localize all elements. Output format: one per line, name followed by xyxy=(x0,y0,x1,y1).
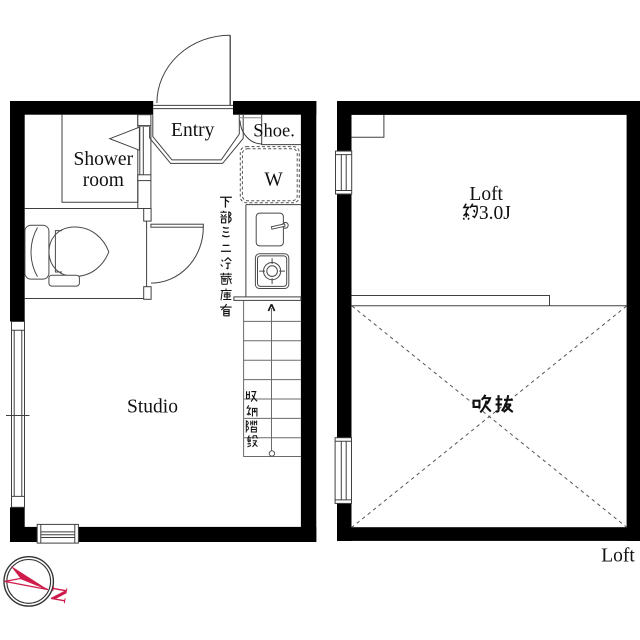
svg-text:Shower: Shower xyxy=(74,149,134,170)
svg-text:3.0J: 3.0J xyxy=(479,203,511,224)
svg-text:Entry: Entry xyxy=(171,120,215,141)
svg-text:Shoe.: Shoe. xyxy=(253,122,295,142)
svg-text:Loft: Loft xyxy=(601,545,635,566)
svg-text:room: room xyxy=(83,170,124,191)
svg-text:Studio: Studio xyxy=(127,396,178,417)
svg-text:W: W xyxy=(264,170,283,191)
svg-text:Loft: Loft xyxy=(469,184,503,205)
